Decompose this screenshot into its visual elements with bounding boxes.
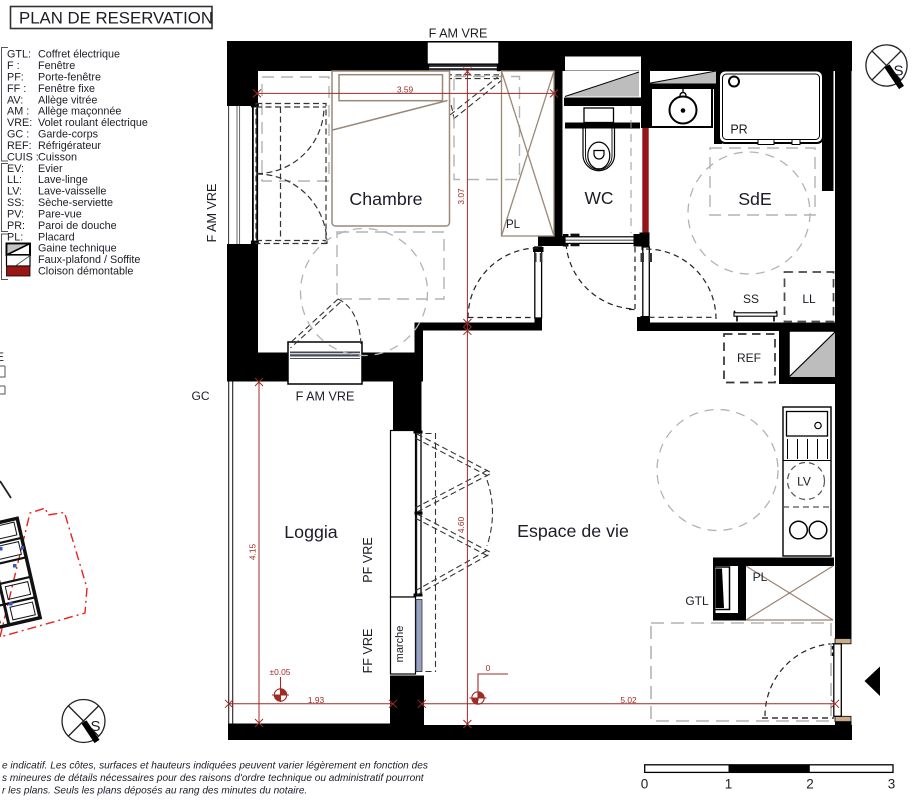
svg-text:GC :: GC : bbox=[7, 129, 29, 141]
svg-text:Coffret électrique: Coffret électrique bbox=[38, 49, 120, 61]
svg-text:PR: PR bbox=[730, 123, 747, 137]
svg-text:F AM VRE: F AM VRE bbox=[205, 184, 219, 243]
svg-text:0: 0 bbox=[641, 777, 649, 792]
svg-text:Réfrigérateur: Réfrigérateur bbox=[38, 140, 101, 152]
svg-text:Lave-linge: Lave-linge bbox=[38, 174, 88, 186]
svg-text:GC: GC bbox=[192, 389, 210, 403]
svg-text:FF VRE: FF VRE bbox=[361, 629, 375, 674]
svg-text:Fenêtre: Fenêtre bbox=[38, 60, 75, 72]
svg-text:Cloison démontable: Cloison démontable bbox=[38, 266, 133, 278]
svg-text:GTL: GTL bbox=[685, 594, 709, 608]
svg-text:GTL:: GTL: bbox=[7, 49, 31, 61]
svg-text:Allège vitrée: Allège vitrée bbox=[38, 94, 97, 106]
svg-text:1: 1 bbox=[725, 777, 733, 792]
svg-text:3.07: 3.07 bbox=[456, 188, 466, 205]
svg-text:EV:: EV: bbox=[7, 163, 24, 175]
svg-text:marche: marche bbox=[394, 626, 406, 663]
svg-text:S: S bbox=[90, 718, 100, 735]
svg-text:CUIS :: CUIS : bbox=[7, 151, 39, 163]
svg-text:0: 0 bbox=[486, 663, 491, 673]
svg-text:REF: REF bbox=[737, 351, 761, 365]
svg-text:s mineures de détails nécessai: s mineures de détails nécessaires pour d… bbox=[2, 773, 425, 784]
svg-text:Espace de vie: Espace de vie bbox=[517, 521, 629, 541]
svg-text:5.02: 5.02 bbox=[620, 695, 637, 705]
svg-text:REF:: REF: bbox=[7, 140, 32, 152]
svg-text:LL: LL bbox=[802, 292, 816, 306]
svg-text:e indicatif. Les côtes, surfac: e indicatif. Les côtes, surfaces et haut… bbox=[2, 761, 428, 772]
svg-text:±0.05: ±0.05 bbox=[270, 667, 291, 677]
svg-text:S: S bbox=[893, 63, 903, 80]
svg-text:PF VRE: PF VRE bbox=[361, 537, 375, 583]
svg-text:Porte-fenêtre: Porte-fenêtre bbox=[38, 71, 101, 83]
svg-text:F AM VRE: F AM VRE bbox=[296, 390, 355, 404]
svg-text:PL: PL bbox=[753, 570, 768, 584]
svg-text:Garde-corps: Garde-corps bbox=[38, 129, 99, 141]
svg-text:AV:: AV: bbox=[7, 94, 23, 106]
svg-text:AM :: AM : bbox=[7, 106, 29, 118]
svg-text:3.59: 3.59 bbox=[397, 85, 414, 95]
svg-text:PL:: PL: bbox=[7, 231, 23, 243]
svg-text:Lave-vaisselle: Lave-vaisselle bbox=[38, 186, 106, 198]
svg-text:4.15: 4.15 bbox=[248, 544, 258, 561]
svg-text:LV:: LV: bbox=[7, 186, 22, 198]
svg-text:Placard: Placard bbox=[38, 231, 75, 243]
svg-text:3: 3 bbox=[888, 777, 896, 792]
svg-text:Evier: Evier bbox=[38, 163, 63, 175]
svg-text:r les plans. Seuls les plans d: r les plans. Seuls les plans déposés au … bbox=[2, 786, 307, 797]
svg-text:Gaine technique: Gaine technique bbox=[38, 243, 117, 255]
svg-text:F :: F : bbox=[7, 60, 20, 72]
svg-text:Cuisson: Cuisson bbox=[38, 151, 77, 163]
svg-text:F AM VRE: F AM VRE bbox=[429, 27, 488, 41]
svg-text:FF :: FF : bbox=[7, 83, 26, 95]
svg-text:Fenêtre fixe: Fenêtre fixe bbox=[38, 83, 95, 95]
svg-text:Paroi de douche: Paroi de douche bbox=[38, 220, 117, 232]
svg-text:WC: WC bbox=[585, 188, 614, 208]
svg-text:Chambre: Chambre bbox=[349, 189, 422, 209]
svg-text:VRE:: VRE: bbox=[7, 117, 32, 129]
svg-text:Volet roulant électrique: Volet roulant électrique bbox=[38, 117, 148, 129]
svg-text:E: E bbox=[0, 350, 4, 364]
svg-text:SS:: SS: bbox=[7, 197, 24, 209]
svg-text:Loggia: Loggia bbox=[284, 522, 338, 542]
svg-text:PR:: PR: bbox=[7, 220, 25, 232]
svg-text:SdE: SdE bbox=[738, 189, 772, 209]
svg-text:1.93: 1.93 bbox=[308, 695, 325, 705]
svg-text:PF:: PF: bbox=[7, 71, 24, 83]
svg-text:LL:: LL: bbox=[7, 174, 22, 186]
svg-text:PV:: PV: bbox=[7, 209, 24, 221]
svg-text:PL: PL bbox=[506, 219, 521, 231]
svg-text:Pare-vue: Pare-vue bbox=[38, 209, 82, 221]
svg-text:2: 2 bbox=[806, 777, 814, 792]
svg-text:Faux-plafond / Soffite: Faux-plafond / Soffite bbox=[38, 254, 140, 266]
svg-text:Sèche-serviette: Sèche-serviette bbox=[38, 197, 113, 209]
svg-text:PLAN DE RESERVATION: PLAN DE RESERVATION bbox=[19, 9, 213, 28]
svg-text:4.60: 4.60 bbox=[456, 517, 466, 534]
svg-text:SS: SS bbox=[743, 292, 759, 306]
svg-text:LV: LV bbox=[797, 475, 811, 489]
svg-text:Allège maçonnée: Allège maçonnée bbox=[38, 106, 121, 118]
